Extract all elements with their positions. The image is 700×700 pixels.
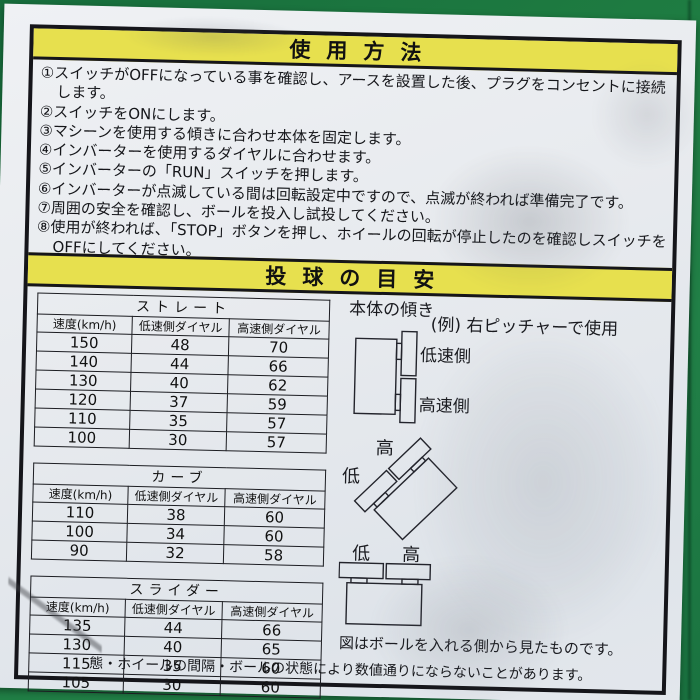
low-dial-header: 低速側ダイヤル (128, 486, 225, 506)
low-label-vertical: 低 (352, 543, 371, 564)
cell: 57 (227, 413, 327, 434)
wheel-mount (374, 492, 389, 507)
cell: 60 (220, 677, 320, 698)
instruction-panel: 使用方法 ①スイッチがOFFになっている事を確認し、アースを設置した後、プラグを… (14, 24, 682, 695)
machine-body (354, 338, 397, 414)
usage-instruction-list: ①スイッチがOFFになっている事を確認し、アースを設置した後、プラグをコンセント… (28, 59, 677, 268)
cell: 105 (28, 672, 123, 693)
curve-table: カーブ 速度(km/h) 低速側ダイヤル 高速側ダイヤル 110 38 60 (31, 462, 326, 566)
machine-vertical-diagram (338, 562, 430, 625)
cell: 34 (127, 523, 224, 544)
high-label-vertical: 高 (402, 545, 421, 566)
high-dial-header: 高速側ダイヤル (222, 602, 322, 622)
low-dial-header: 低速側ダイヤル (132, 316, 229, 336)
high-speed-wheel (400, 378, 416, 422)
speed-header: 速度(km/h) (37, 314, 132, 334)
high-speed-wheel (386, 564, 430, 580)
cell: 60 (224, 507, 324, 528)
cell: 62 (227, 375, 327, 396)
machine-body (346, 583, 422, 626)
cell: 100 (32, 521, 127, 542)
cell: 48 (131, 334, 228, 355)
cell: 59 (227, 394, 327, 415)
cell: 90 (31, 540, 126, 561)
cell: 120 (35, 389, 130, 410)
dial-tables-column: ストレート 速度(km/h) 低速側ダイヤル 高速側ダイヤル 150 48 70 (19, 286, 336, 655)
high-dial-header: 高速側ダイヤル (225, 489, 325, 509)
low-speed-wheel (401, 331, 417, 375)
cell: 30 (129, 429, 226, 450)
cell: 130 (36, 370, 131, 391)
cell: 44 (131, 353, 228, 374)
guide-title: 投球の目安 (249, 260, 451, 295)
cell: 66 (222, 620, 322, 641)
cell: 66 (228, 356, 328, 377)
cell: 35 (130, 410, 227, 431)
diagram-caption: 図はボールを入れる側から見たものです。 (339, 634, 623, 659)
cell: 32 (126, 542, 223, 563)
low-speed-side-label: 低速側 (420, 346, 471, 367)
cell: 130 (29, 634, 124, 655)
high-label-tilted: 高 (375, 438, 394, 459)
wheel-mount (411, 457, 426, 472)
cell: 110 (32, 502, 127, 523)
high-speed-side-label: 高速側 (419, 396, 470, 417)
cell: 70 (228, 337, 328, 358)
cell: 140 (36, 351, 131, 372)
cell: 38 (127, 504, 224, 525)
cell: 40 (131, 372, 228, 393)
tilt-diagram-column: 本体の傾き (例) 右ピッチャーで使用 低速側 高速側 (327, 294, 672, 664)
usage-title: 使用方法 (273, 33, 438, 67)
speed-header: 速度(km/h) (33, 484, 128, 504)
cell: 57 (226, 432, 326, 453)
low-dial-header: 低速側ダイヤル (125, 599, 222, 619)
cell: 60 (224, 526, 324, 547)
machine-horizontal-diagram (354, 330, 417, 422)
instruction-sticker: 使用方法 ①スイッチがOFFになっている事を確認し、アースを設置した後、プラグを… (0, 4, 696, 700)
tilt-example: (例) 右ピッチャーで使用 (430, 314, 618, 340)
cell: 100 (34, 427, 129, 448)
low-speed-wheel (339, 562, 383, 578)
low-label-tilted: 低 (342, 466, 361, 487)
guide-content: ストレート 速度(km/h) 低速側ダイヤル 高速側ダイヤル 150 48 70 (19, 286, 672, 664)
cell: 44 (125, 617, 222, 638)
cell: 110 (35, 408, 130, 429)
machine-body-background: 使用方法 ①スイッチがOFFになっている事を確認し、アースを設置した後、プラグを… (0, 0, 700, 700)
cell: 150 (36, 332, 131, 353)
high-dial-header: 高速側ダイヤル (229, 319, 329, 339)
cell: 135 (30, 615, 125, 636)
tilt-heading: 本体の傾き (349, 299, 434, 321)
speed-header: 速度(km/h) (30, 597, 125, 617)
machine-tilted-diagram (355, 438, 463, 545)
cell: 58 (223, 545, 323, 566)
slider-table: スライダー 速度(km/h) 低速側ダイヤル 高速側ダイヤル 135 44 66 (28, 575, 324, 698)
cell: 30 (123, 674, 220, 695)
cell: 37 (130, 391, 227, 412)
tilt-diagram: 本体の傾き (例) 右ピッチャーで使用 低速側 高速側 (337, 296, 672, 662)
straight-table: ストレート 速度(km/h) 低速側ダイヤル 高速側ダイヤル 150 48 70 (34, 293, 331, 454)
